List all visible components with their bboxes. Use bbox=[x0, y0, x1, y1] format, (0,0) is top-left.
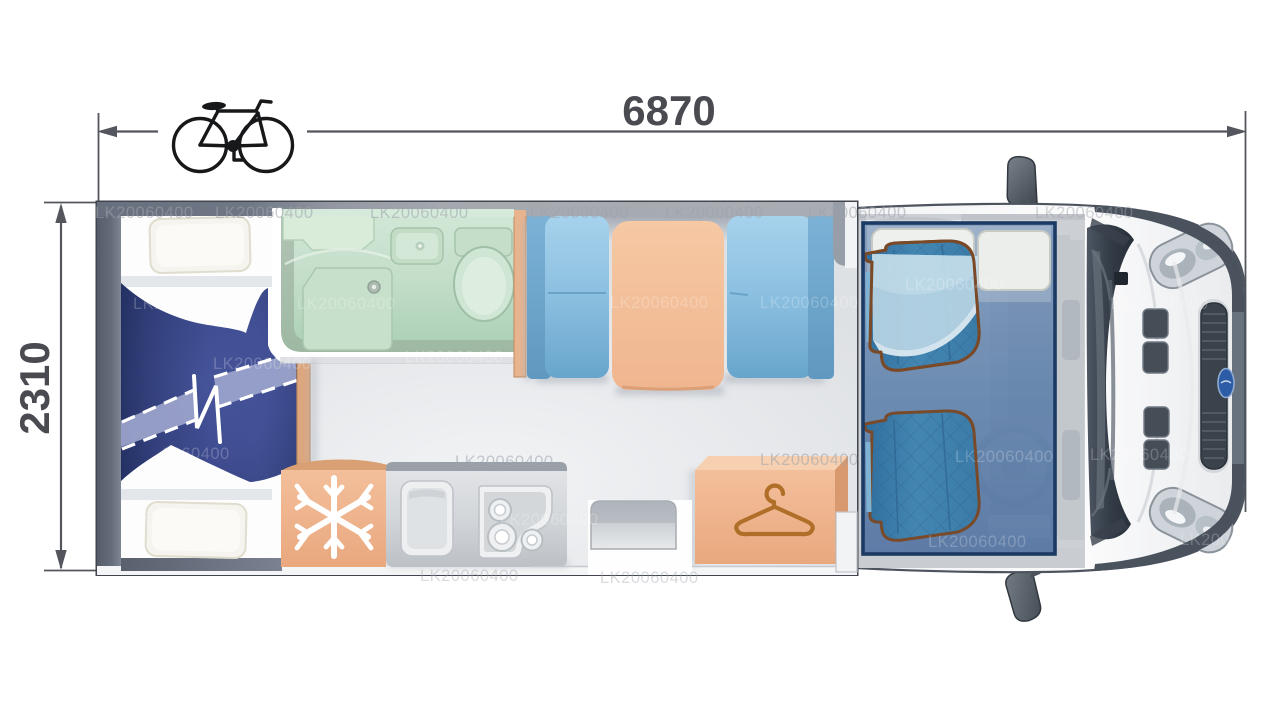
svg-text:LK20060400: LK20060400 bbox=[500, 511, 599, 529]
svg-text:LK20060400: LK20060400 bbox=[297, 295, 396, 313]
svg-text:LK20060400: LK20060400 bbox=[95, 204, 194, 222]
svg-text:LK20060400: LK20060400 bbox=[808, 204, 907, 222]
svg-text:LK20060400: LK20060400 bbox=[905, 276, 1004, 294]
svg-text:LK20060400: LK20060400 bbox=[405, 348, 504, 366]
svg-text:LK20060400: LK20060400 bbox=[370, 204, 469, 222]
svg-text:LK20060400: LK20060400 bbox=[955, 448, 1054, 466]
svg-text:LK20060400: LK20060400 bbox=[420, 567, 519, 585]
svg-text:LK20060400: LK20060400 bbox=[1035, 204, 1134, 222]
svg-text:2310: 2310 bbox=[11, 341, 58, 434]
svg-text:LK20060400: LK20060400 bbox=[1180, 531, 1279, 549]
svg-text:LK20060400: LK20060400 bbox=[928, 533, 1027, 551]
svg-text:0060400: 0060400 bbox=[162, 445, 230, 463]
svg-text:LK20060400: LK20060400 bbox=[120, 509, 219, 527]
svg-text:LK20060400: LK20060400 bbox=[530, 204, 629, 222]
svg-text:LK20060400: LK20060400 bbox=[1110, 295, 1209, 313]
svg-text:LK20060400: LK20060400 bbox=[610, 294, 709, 312]
svg-text:LK20060400: LK20060400 bbox=[215, 204, 314, 222]
svg-text:LK20060400: LK20060400 bbox=[133, 295, 232, 313]
svg-text:LK20060400: LK20060400 bbox=[760, 451, 859, 469]
svg-text:LK20060400: LK20060400 bbox=[213, 355, 312, 373]
svg-text:6870: 6870 bbox=[622, 87, 715, 134]
svg-text:LK20060400: LK20060400 bbox=[1090, 446, 1189, 464]
svg-text:LK20060400: LK20060400 bbox=[455, 453, 554, 471]
svg-text:LK20060400: LK20060400 bbox=[760, 294, 859, 312]
svg-text:LK20060400: LK20060400 bbox=[665, 204, 764, 222]
svg-text:LK20060400: LK20060400 bbox=[600, 569, 699, 587]
